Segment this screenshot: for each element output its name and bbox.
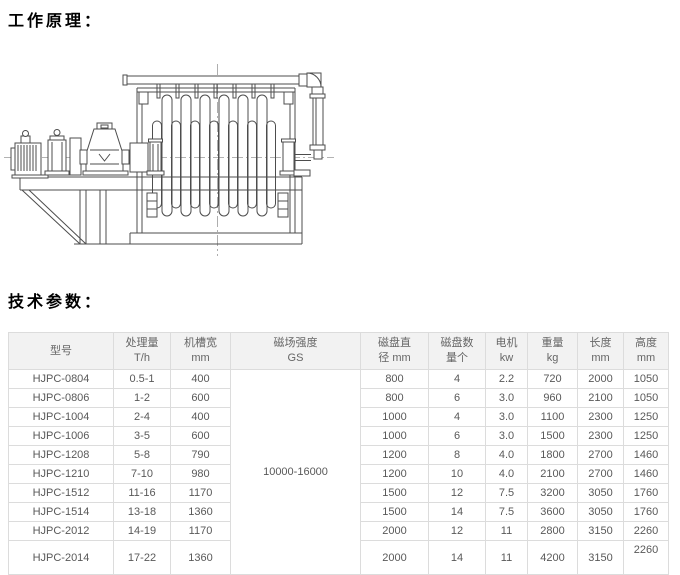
electric-motor (11, 131, 48, 179)
table-cell: 17-22 (114, 541, 171, 575)
table-cell: HJPC-1006 (9, 427, 114, 446)
table-cell: 13-18 (114, 503, 171, 522)
magnetic-field-merged-cell: 10000-16000 (231, 370, 361, 575)
table-cell: 11 (486, 541, 528, 575)
table-cell: 7-10 (114, 465, 171, 484)
table-cell: 1200 (361, 465, 429, 484)
table-cell: 2800 (528, 522, 578, 541)
table-cell: 1500 (528, 427, 578, 446)
table-cell: 1460 (624, 446, 669, 465)
table-cell: 12 (429, 522, 486, 541)
table-cell: 2260 (624, 522, 669, 541)
table-cell: 790 (171, 446, 231, 465)
table-cell: 5-8 (114, 446, 171, 465)
table-cell: 960 (528, 389, 578, 408)
table-cell: 14-19 (114, 522, 171, 541)
table-cell: 0.5-1 (114, 370, 171, 389)
table-cell: 4.0 (486, 465, 528, 484)
table-cell: 3-5 (114, 427, 171, 446)
bearing-pedestal (45, 130, 81, 176)
table-cell: 12 (429, 484, 486, 503)
table-cell: 980 (171, 465, 231, 484)
table-cell: 1360 (171, 541, 231, 575)
table-cell: HJPC-1514 (9, 503, 114, 522)
table-cell: HJPC-0806 (9, 389, 114, 408)
table-cell: 11 (486, 522, 528, 541)
table-row: HJPC-08040.5-140010000-1600080042.272020… (9, 370, 669, 389)
table-cell: 3050 (578, 484, 624, 503)
table-cell: 400 (171, 408, 231, 427)
table-cell: 600 (171, 389, 231, 408)
table-cell: 1200 (361, 446, 429, 465)
table-cell: 6 (429, 389, 486, 408)
table-cell: 1760 (624, 484, 669, 503)
table-cell: 4200 (528, 541, 578, 575)
col-disk-diameter: 磁盘直 径 mm (361, 333, 429, 370)
table-cell: 2700 (578, 465, 624, 484)
table-cell: 2000 (578, 370, 624, 389)
col-height: 高度 mm (624, 333, 669, 370)
col-length: 长度 mm (578, 333, 624, 370)
table-cell: 2.2 (486, 370, 528, 389)
table-cell: 4.0 (486, 446, 528, 465)
table-cell: 6 (429, 427, 486, 446)
table-cell: 2700 (578, 446, 624, 465)
table-cell: 1500 (361, 484, 429, 503)
table-cell: 2100 (578, 389, 624, 408)
table-cell: 8 (429, 446, 486, 465)
table-cell: 1170 (171, 484, 231, 503)
table-cell: 2000 (361, 522, 429, 541)
table-cell: 1760 (624, 503, 669, 522)
table-cell: 1250 (624, 408, 669, 427)
table-cell: 1000 (361, 427, 429, 446)
table-body: HJPC-08040.5-140010000-1600080042.272020… (9, 370, 669, 575)
col-weight: 重量 kg (528, 333, 578, 370)
table-cell: HJPC-2012 (9, 522, 114, 541)
col-field-strength: 磁场强度 GS (231, 333, 361, 370)
table-cell: 4 (429, 370, 486, 389)
magnetic-disk-tubes (153, 84, 276, 216)
col-disk-count: 磁盘数 量个 (429, 333, 486, 370)
working-principle-heading: 工作原理： (8, 7, 103, 31)
table-cell: 3050 (578, 503, 624, 522)
col-slot-width: 机槽宽 mm (171, 333, 231, 370)
table-cell: 800 (361, 370, 429, 389)
table-cell: 1050 (624, 370, 669, 389)
table-cell: 4 (429, 408, 486, 427)
gearbox (80, 123, 129, 175)
table-cell: 10 (429, 465, 486, 484)
table-cell: HJPC-0804 (9, 370, 114, 389)
table-cell: 800 (361, 389, 429, 408)
table-cell: 1500 (361, 503, 429, 522)
table-cell: 7.5 (486, 503, 528, 522)
table-cell: 3.0 (486, 408, 528, 427)
table-cell: 600 (171, 427, 231, 446)
table-cell: HJPC-1208 (9, 446, 114, 465)
table-cell: 3200 (528, 484, 578, 503)
table-cell: 11-16 (114, 484, 171, 503)
table-cell: 720 (528, 370, 578, 389)
col-motor: 电机 kw (486, 333, 528, 370)
table-cell: 3150 (578, 522, 624, 541)
table-cell: 2260 (624, 541, 669, 575)
table-cell: 3.0 (486, 389, 528, 408)
table-header: 型号 处理量 T/h 机槽宽 mm 磁场强度 GS 磁盘直 径 mm 磁盘数 量… (9, 333, 669, 370)
table-cell: 1100 (528, 408, 578, 427)
table-cell: HJPC-1210 (9, 465, 114, 484)
table-cell: 2300 (578, 427, 624, 446)
table-cell: 3.0 (486, 427, 528, 446)
table-cell: HJPC-2014 (9, 541, 114, 575)
table-cell: 14 (429, 541, 486, 575)
table-cell: 2100 (528, 465, 578, 484)
table-cell: 1170 (171, 522, 231, 541)
table-cell: 1800 (528, 446, 578, 465)
table-cell: 2-4 (114, 408, 171, 427)
table-cell: 1050 (624, 389, 669, 408)
table-cell: 1000 (361, 408, 429, 427)
table-cell: 3600 (528, 503, 578, 522)
machine-technical-drawing (0, 58, 340, 258)
table-cell: 2000 (361, 541, 429, 575)
table-cell: 1250 (624, 427, 669, 446)
col-model: 型号 (9, 333, 114, 370)
table-cell: 400 (171, 370, 231, 389)
table-cell: HJPC-1512 (9, 484, 114, 503)
parameters-table: 型号 处理量 T/h 机槽宽 mm 磁场强度 GS 磁盘直 径 mm 磁盘数 量… (8, 332, 669, 575)
table-cell: 7.5 (486, 484, 528, 503)
table-cell: 2300 (578, 408, 624, 427)
table-cell: HJPC-1004 (9, 408, 114, 427)
table-cell: 1460 (624, 465, 669, 484)
technical-parameters-heading: 技术参数： (8, 288, 103, 312)
table-cell: 1-2 (114, 389, 171, 408)
table-cell: 1360 (171, 503, 231, 522)
table-cell: 14 (429, 503, 486, 522)
table-cell: 3150 (578, 541, 624, 575)
col-capacity: 处理量 T/h (114, 333, 171, 370)
